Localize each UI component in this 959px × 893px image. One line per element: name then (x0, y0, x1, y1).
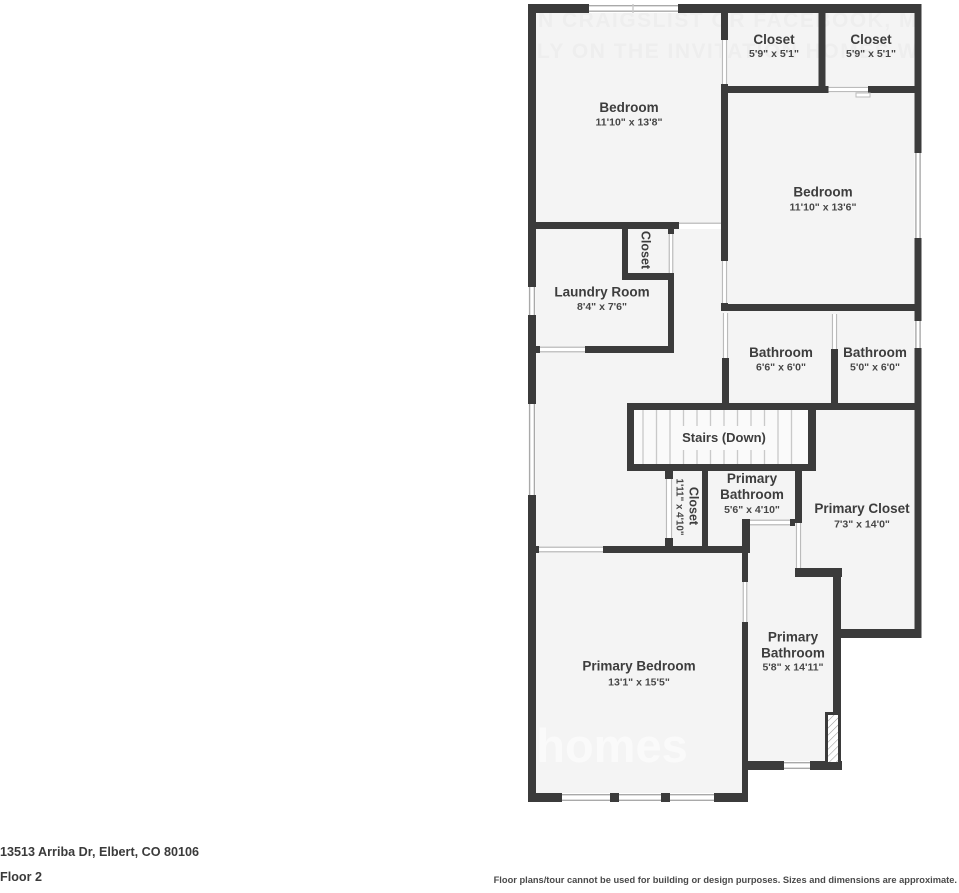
svg-text:homes: homes (536, 719, 688, 772)
svg-text:Bathroom: Bathroom (761, 646, 825, 661)
svg-text:5'6" x 4'10": 5'6" x 4'10" (724, 504, 780, 516)
svg-text:5'9" x 5'1": 5'9" x 5'1" (749, 48, 799, 60)
svg-text:13513 Arriba Dr, Elbert, CO 80: 13513 Arriba Dr, Elbert, CO 80106 (0, 845, 199, 859)
svg-text:Floor 2: Floor 2 (0, 870, 42, 884)
svg-text:Closet: Closet (687, 487, 701, 526)
svg-text:11'10" x 13'6": 11'10" x 13'6" (790, 202, 857, 214)
svg-text:Primary Bedroom: Primary Bedroom (582, 659, 695, 674)
svg-text:8'4" x 7'6": 8'4" x 7'6" (577, 301, 627, 313)
svg-text:6'6" x 6'0": 6'6" x 6'0" (756, 362, 806, 374)
svg-text:7'3" x 14'0": 7'3" x 14'0" (834, 519, 890, 531)
svg-text:Bedroom: Bedroom (793, 185, 852, 200)
svg-text:Stairs (Down): Stairs (Down) (682, 430, 766, 445)
svg-text:Primary Closet: Primary Closet (814, 501, 910, 516)
svg-text:Closet: Closet (850, 32, 892, 47)
svg-text:Bathroom: Bathroom (720, 487, 784, 502)
svg-text:13'1" x 15'5": 13'1" x 15'5" (608, 677, 670, 689)
svg-text:Laundry Room: Laundry Room (554, 285, 649, 300)
svg-text:5'8" x 14'11": 5'8" x 14'11" (762, 662, 823, 674)
svg-text:Primary: Primary (768, 630, 819, 645)
svg-text:1'11" x 4'10": 1'11" x 4'10" (674, 479, 685, 536)
svg-text:5'0" x 6'0": 5'0" x 6'0" (850, 362, 900, 374)
svg-text:Closet: Closet (753, 32, 795, 47)
svg-text:Bedroom: Bedroom (599, 100, 658, 115)
svg-text:5'9" x 5'1": 5'9" x 5'1" (846, 48, 896, 60)
svg-text:Closet: Closet (639, 231, 653, 270)
svg-text:Bathroom: Bathroom (843, 345, 907, 360)
svg-text:Primary: Primary (727, 471, 778, 486)
svg-text:Floor plans/tour cannot be use: Floor plans/tour cannot be used for buil… (494, 875, 957, 885)
svg-text:Bathroom: Bathroom (749, 345, 813, 360)
svg-text:11'10" x 13'8": 11'10" x 13'8" (596, 117, 663, 129)
